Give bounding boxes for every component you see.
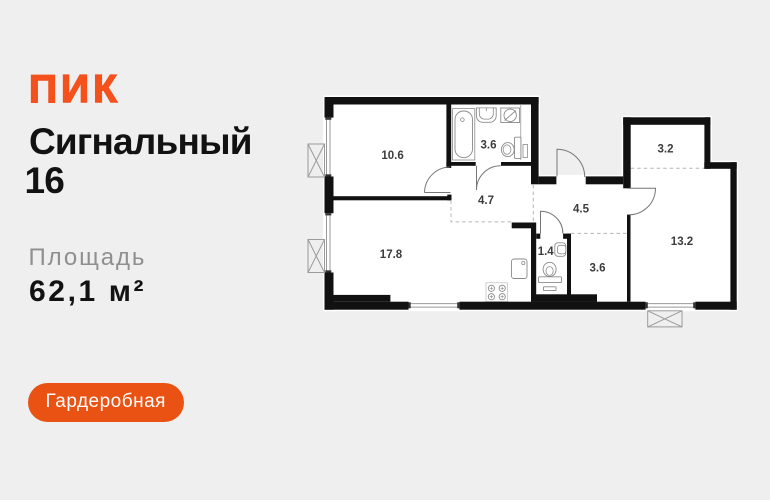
svg-text:4.5: 4.5: [573, 204, 590, 216]
svg-text:3.2: 3.2: [658, 144, 674, 156]
svg-text:17.8: 17.8: [380, 249, 403, 261]
svg-text:3.6: 3.6: [481, 140, 497, 152]
svg-text:4.7: 4.7: [478, 195, 494, 207]
svg-text:3.6: 3.6: [590, 263, 606, 275]
svg-text:13.2: 13.2: [671, 236, 693, 248]
svg-text:1.4: 1.4: [538, 246, 555, 258]
svg-text:10.6: 10.6: [381, 150, 403, 162]
